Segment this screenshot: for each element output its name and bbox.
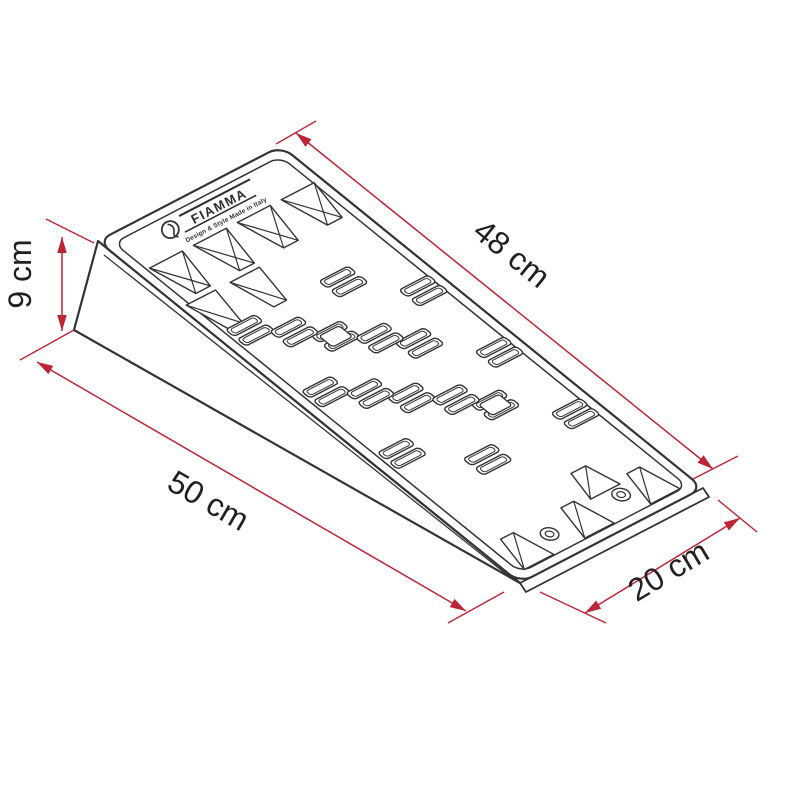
extension-line bbox=[20, 330, 74, 360]
dimension-arrowhead-icon bbox=[57, 237, 67, 253]
dimension-label-9cm: 9 cm bbox=[2, 239, 38, 308]
dimension-arrowhead-icon bbox=[57, 315, 67, 331]
extension-line bbox=[46, 219, 94, 243]
technical-drawing: FIAMMA Design & Style Made in Italy 48 c… bbox=[0, 0, 800, 800]
dimension-label-50cm: 50 cm bbox=[162, 463, 255, 538]
dimension-arrowhead-icon bbox=[585, 601, 601, 613]
dimension-arrowhead-icon bbox=[698, 455, 713, 469]
extension-line bbox=[693, 456, 738, 479]
dimension-label-20cm: 20 cm bbox=[622, 533, 715, 609]
dimension-arrowhead-icon bbox=[724, 518, 740, 530]
dimension-arrowhead-icon bbox=[37, 362, 53, 374]
dimension-arrowhead-icon bbox=[450, 599, 466, 611]
dimension-arrowhead-icon bbox=[296, 133, 311, 147]
ramp: FIAMMA Design & Style Made in Italy bbox=[74, 146, 709, 592]
